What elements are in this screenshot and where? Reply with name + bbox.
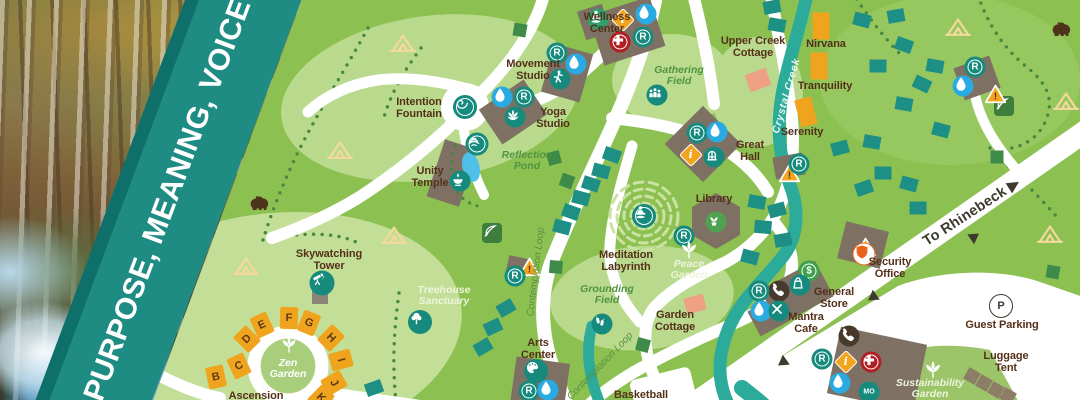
label-peace-garden: Peace Garden	[671, 259, 708, 282]
tree-icon	[408, 310, 432, 334]
restroom-icon: R	[633, 27, 654, 48]
telescope-icon	[310, 271, 335, 296]
seedling-icon	[278, 334, 300, 356]
tent-icon	[327, 140, 354, 161]
tent-icon	[390, 33, 417, 54]
label-skywatching-tower: Skywatching Tower	[296, 249, 362, 273]
leafsq-icon	[482, 223, 502, 243]
label-tranquility: Tranquility	[798, 81, 853, 93]
phone-icon	[769, 281, 790, 302]
label-yoga-studio: Yoga Studio	[536, 107, 570, 131]
mo-icon: MO	[859, 382, 880, 400]
bag-icon	[790, 275, 811, 296]
label-security-office: Security Office	[869, 257, 912, 281]
restroom-icon: R	[789, 154, 810, 175]
restroom-icon: R	[687, 123, 708, 144]
label-mantra-cafe: Mantra Cafe	[788, 312, 823, 336]
label-zen-garden: Zen Garden	[270, 358, 307, 381]
label-garden-cottage: Garden Cottage	[655, 310, 695, 334]
label-general-store: General Store	[814, 287, 854, 311]
utensils-icon	[769, 301, 790, 322]
ripple-icon	[466, 133, 489, 156]
svg-text:!: !	[994, 92, 997, 103]
lotus-icon	[505, 107, 526, 128]
restroom-icon: R	[749, 281, 770, 302]
restroom-icon: R	[965, 57, 986, 78]
tent-icon	[381, 225, 408, 246]
tent-icon	[945, 17, 972, 38]
label-luggage-tent: Luggage Tent	[983, 351, 1028, 375]
restroom-icon: R	[812, 349, 833, 370]
drop-icon	[538, 380, 559, 400]
label-arts-center: Arts Center	[521, 338, 555, 362]
cabin-H: H	[317, 324, 345, 352]
cabin-G: G	[297, 309, 322, 336]
restroom-icon: R	[519, 381, 540, 400]
label-library: Library	[696, 194, 733, 206]
phone-icon	[839, 326, 860, 347]
tent-icon	[1037, 224, 1064, 245]
info-icon: i	[838, 354, 855, 371]
lamp-icon	[450, 171, 471, 192]
drop-icon	[636, 4, 657, 25]
cabin-C: C	[226, 352, 252, 380]
parking-icon: P	[989, 294, 1013, 318]
label-sustainability-garden: Sustainability Garden	[896, 378, 964, 400]
label-ascension: Ascension	[229, 391, 284, 400]
label-unity-temple: Unity Temple	[411, 166, 448, 190]
label-movement-studio: Movement Studio	[506, 59, 560, 83]
cabin-F: F	[280, 307, 299, 330]
label-gathering-field: Gathering Field	[654, 65, 704, 88]
label-guest-parking: Guest Parking	[965, 320, 1038, 332]
drop-icon	[953, 76, 974, 97]
label-meditation-labyrinth: Meditation Labyrinth	[599, 250, 653, 274]
bear-icon	[1051, 19, 1076, 40]
info-icon: i	[683, 147, 700, 164]
label-serenity: Serenity	[781, 127, 824, 139]
plant-icon	[706, 212, 727, 233]
label-to-rhinebeck: To Rhinebeck ▶	[921, 176, 1023, 250]
tent-icon	[233, 256, 260, 277]
restroom-icon: R	[505, 266, 526, 287]
drop-icon	[707, 122, 728, 143]
label-treehouse-sanctuary: Treehouse Sanctuary	[418, 285, 471, 308]
label-reflection-pond: Reflection Pond	[502, 150, 553, 173]
feet-icon	[592, 314, 613, 335]
label-grounding-field: Grounding Field	[580, 284, 634, 307]
meditate-teal-icon	[632, 204, 656, 228]
label-nirvana: Nirvana	[806, 39, 846, 51]
cabin-B: B	[205, 364, 227, 389]
retreat-campus-map: iRRRRiR!R!RR!R$R!PRiMOWellness CenterMov…	[0, 0, 1080, 400]
restroom-icon: R	[514, 87, 535, 108]
label-crystal-creek: Crystal Creek	[771, 57, 803, 135]
cross-icon	[861, 352, 882, 373]
tent-icon	[1053, 91, 1080, 112]
drop-icon	[492, 87, 513, 108]
bear-icon	[249, 193, 274, 214]
spiral-icon	[453, 95, 477, 119]
label-basketball: Basketball	[614, 390, 668, 400]
drop-icon	[830, 373, 851, 394]
label-great-hall: Great Hall	[736, 140, 764, 164]
cabin-I: I	[328, 348, 354, 371]
label-upper-creek-cottage: Upper Creek Cottage	[721, 36, 785, 60]
label-wellness-center: Wellness Center	[584, 12, 631, 36]
label-intention-fountain: Intention Fountain	[396, 97, 442, 121]
window-icon	[704, 147, 725, 168]
